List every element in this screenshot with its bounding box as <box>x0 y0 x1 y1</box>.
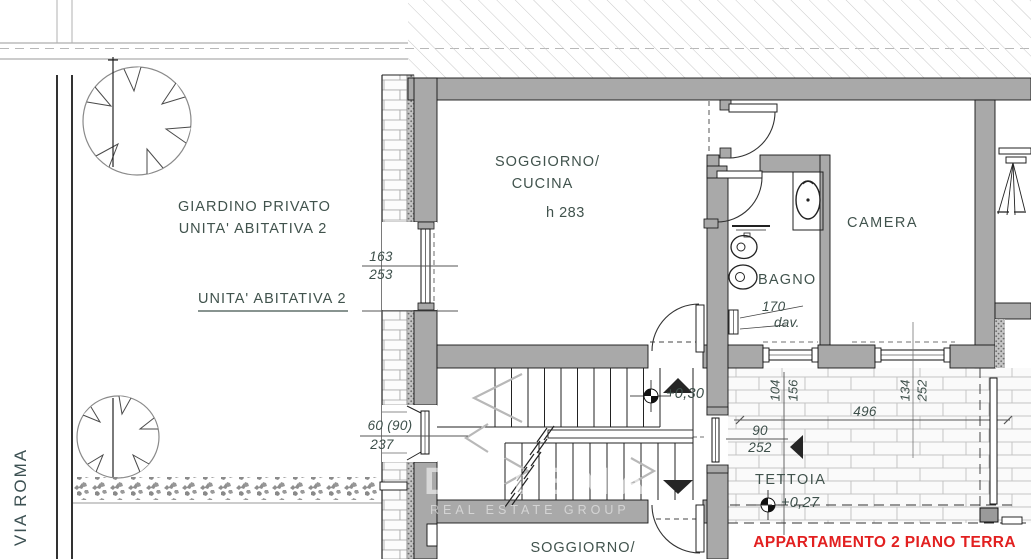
dim-252: 252 <box>915 376 930 406</box>
garden-wall-sill <box>380 482 407 490</box>
neighbour-insulation <box>995 319 1005 368</box>
door-camera <box>709 100 777 158</box>
level-marker-hall <box>630 380 670 412</box>
room-label-tettoia: TETTOIA <box>755 472 826 488</box>
dim-door-width: 90 <box>740 423 780 438</box>
stair-down-arrow <box>663 480 693 494</box>
door-lower-unit <box>652 505 704 553</box>
lower-unit-jamb <box>427 524 437 546</box>
room-label-soggiorno-2: CUCINA <box>495 176 590 192</box>
room-label-lower-soggiorno: SOGGIORNO/ <box>528 540 638 556</box>
dim-134: 134 <box>898 376 913 406</box>
room-height-label: h 283 <box>546 205 585 221</box>
door-apartment-entrance <box>650 304 704 352</box>
street-label: VIA ROMA <box>11 442 31 552</box>
dim-door-height: 252 <box>740 440 780 455</box>
railing <box>990 378 997 504</box>
dim-104: 104 <box>768 376 783 406</box>
dim-win1-width: 163 <box>362 249 400 264</box>
garden-label-line1: GIARDINO PRIVATO <box>178 199 324 215</box>
window-stairhall <box>382 405 437 462</box>
bidet <box>731 236 757 259</box>
level-tettoia: +0,27 <box>781 495 819 511</box>
floor-plan-page: VIA ROMA GIARDINO PRIVATO UNITA' ABITATI… <box>0 0 1031 559</box>
garden-label-line2: UNITA' ABITATIVA 2 <box>178 221 328 237</box>
pillar <box>980 508 998 522</box>
dim-win1-height: 253 <box>362 267 400 282</box>
dim-bagno-sill: dav. <box>774 315 800 330</box>
neighbour-unit <box>997 148 1031 215</box>
dim-bagno-window: 170 <box>762 299 785 314</box>
room-label-bagno: BAGNO <box>758 272 816 288</box>
unit-label: UNITA' ABITATIVA 2 <box>198 291 347 307</box>
hedge-row <box>73 477 391 500</box>
dim-156: 156 <box>786 376 801 406</box>
watermark-logo: DIALEMA <box>424 461 653 504</box>
dim-win2-height: 237 <box>352 437 412 452</box>
level-hall: +0,30 <box>666 386 704 402</box>
adjacent-building-hatch <box>408 0 1031 78</box>
watermark-tagline: REAL ESTATE GROUP <box>430 503 630 517</box>
dim-span-496: 496 <box>845 404 885 419</box>
tree-symbol-1 <box>83 57 191 175</box>
dim-win2-width: 60 (90) <box>352 418 428 433</box>
door-to-tettoia <box>693 407 728 473</box>
apartment-title: APPARTAMENTO 2 PIANO TERRA <box>700 534 1016 552</box>
room-label-camera: CAMERA <box>847 215 918 231</box>
room-label-soggiorno-1: SOGGIORNO/ <box>495 154 590 170</box>
toilet <box>729 265 757 289</box>
tree-symbol-2 <box>77 396 159 478</box>
window-bagno-south <box>763 342 818 362</box>
